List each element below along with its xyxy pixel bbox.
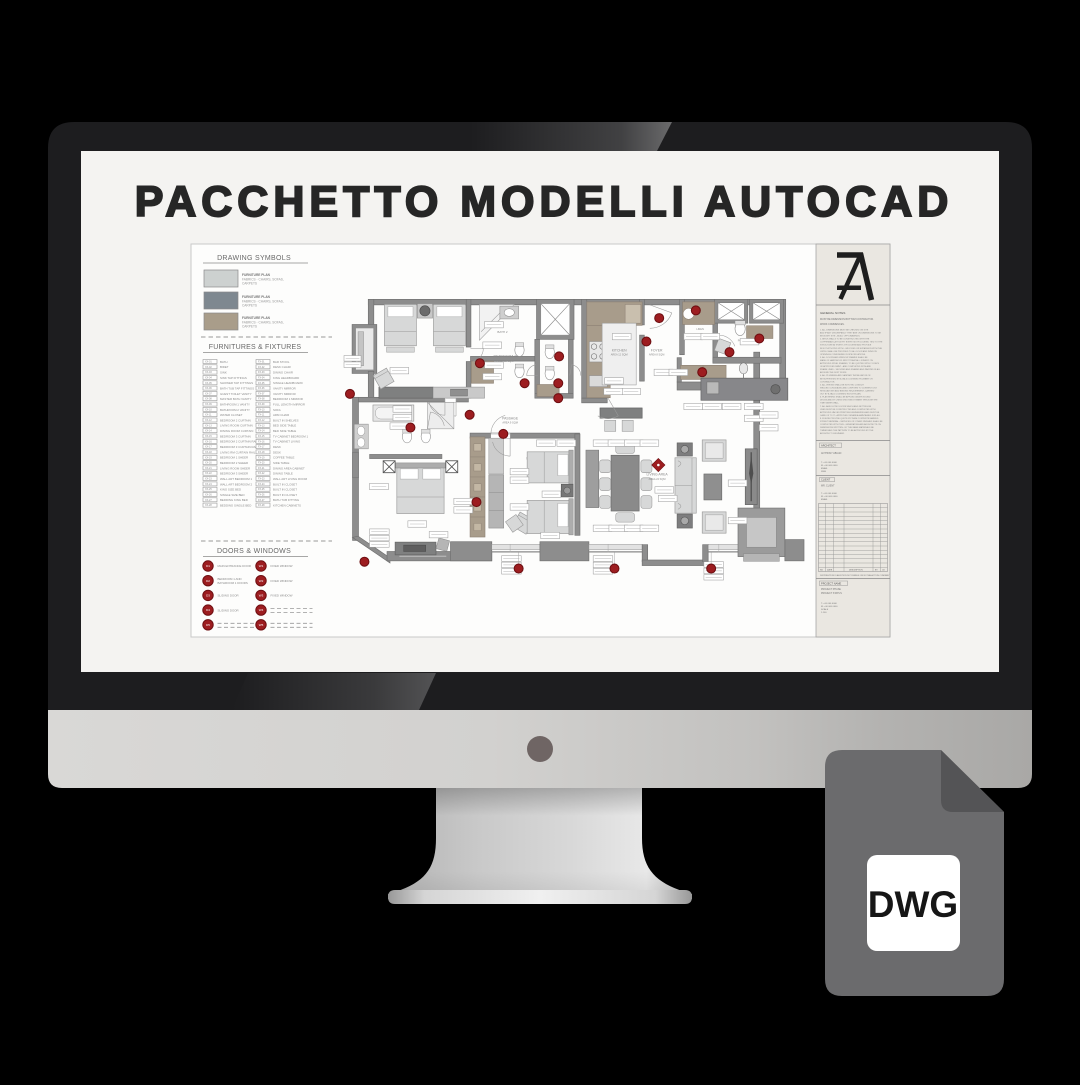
- svg-text:STRUCTURE AT EVERY 4TH COURSE: STRUCTURE AT EVERY 4TH COURSE AND PROVID…: [820, 344, 872, 347]
- svg-text:APPROVED VALVES PRINTING ENGIN: APPROVED VALVES PRINTING ENGINEERING AND…: [820, 411, 880, 414]
- svg-text:1. ALL DIMENSIONS MUST BE C: 1. ALL DIMENSIONS MUST BE CHECKED ON SIT…: [820, 329, 869, 332]
- svg-text:FULL LENGTH MIRROR: FULL LENGTH MIRROR: [273, 403, 305, 407]
- svg-text:FX-06: FX-06: [258, 387, 265, 390]
- svg-text:AREA 9 SQM: AREA 9 SQM: [502, 421, 517, 425]
- svg-text:XX-06: XX-06: [205, 387, 212, 390]
- svg-text:FX-27: FX-27: [258, 499, 265, 502]
- svg-text:FX-09: FX-09: [258, 403, 265, 406]
- svg-text:WALL ART LIVING ROOM: WALL ART LIVING ROOM: [273, 477, 308, 481]
- svg-text:ARM CHAIR: ARM CHAIR: [273, 413, 289, 417]
- svg-text:SLIDING DOOR: SLIDING DOOR: [218, 608, 239, 612]
- svg-text:XX-02: XX-02: [205, 366, 212, 369]
- svg-text:ARCHITECT / ENGINEER.: ARCHITECT / ENGINEER.: [820, 432, 845, 435]
- svg-text:XX-18: XX-18: [205, 451, 212, 454]
- svg-text:BEDROOM 2: BEDROOM 2: [494, 354, 517, 358]
- svg-text:4. ALL PLUMBING AND SANITAR: 4. ALL PLUMBING AND SANITARY INSTALLATIO…: [820, 374, 871, 377]
- svg-text:LINEN: LINEN: [696, 327, 704, 331]
- svg-text:AREA 12 SQM: AREA 12 SQM: [611, 353, 628, 357]
- svg-text:D4: D4: [206, 608, 210, 612]
- svg-text:AND IF ANY DISCREPANCY THEY AR: AND IF ANY DISCREPANCY THEY ARE ON DIMEN…: [820, 332, 882, 335]
- svg-text:WALL ART BEDROOM 1: WALL ART BEDROOM 1: [220, 477, 253, 481]
- svg-text:FURNITURES & FIXTURES: FURNITURES & FIXTURES: [209, 344, 302, 351]
- svg-text:BEDROOM 1 MIRROR: BEDROOM 1 MIRROR: [273, 397, 303, 401]
- svg-text:GENERAL NOTES: GENERAL NOTES: [820, 311, 845, 315]
- svg-text:FX-20: FX-20: [258, 462, 265, 465]
- svg-text:BATH: BATH: [220, 360, 228, 364]
- svg-text:BEDDING SINGLE BED: BEDDING SINGLE BED: [220, 504, 251, 508]
- svg-text:XX-08: XX-08: [205, 398, 212, 401]
- svg-text:T: +00 000 0000: T: +00 000 0000: [821, 462, 838, 464]
- svg-text:D2: D2: [206, 579, 210, 583]
- svg-text:FX-07: FX-07: [258, 392, 265, 395]
- svg-text:BED SIDE TABLE: BED SIDE TABLE: [273, 429, 296, 433]
- svg-text:COPPERBAR LATTICE FIT EVERY SI: COPPERBAR LATTICE FIT EVERY SIXTH COURSE…: [820, 341, 883, 344]
- svg-text:TV CABINET LIVING: TV CABINET LIVING: [273, 440, 301, 444]
- svg-text:XX-01: XX-01: [205, 361, 212, 364]
- svg-text:M: +00 000 0000: M: +00 000 0000: [821, 606, 838, 608]
- svg-text:XX-11: XX-11: [205, 414, 212, 417]
- svg-text:WATER CLOSET: WATER CLOSET: [220, 413, 243, 417]
- svg-text:DINING CHAIR: DINING CHAIR: [273, 371, 293, 375]
- svg-text:DESK CHAIR: DESK CHAIR: [273, 365, 291, 369]
- svg-text:FX-08: FX-08: [258, 398, 265, 401]
- svg-text:NO: NO: [820, 569, 823, 571]
- svg-text:AROUND THE SOFT WORK.: AROUND THE SOFT WORK.: [820, 371, 847, 374]
- svg-text:XX-21: XX-21: [205, 467, 212, 470]
- svg-text:BATHROOM 1 VANITY: BATHROOM 1 VANITY: [220, 403, 250, 407]
- svg-text:DESK: DESK: [273, 445, 281, 449]
- svg-text:XX-27: XX-27: [205, 499, 212, 502]
- svg-text:XX-12: XX-12: [205, 419, 212, 422]
- svg-text:CARPETS: CARPETS: [242, 325, 257, 329]
- svg-text:BEDROOM 2 CURTAIN RAIL: BEDROOM 2 CURTAIN RAIL: [220, 440, 258, 444]
- svg-text:6. PLASTERING SHALL BE APPL: 6. PLASTERING SHALL BE APPLIED UNDER SOU…: [820, 396, 871, 399]
- svg-text:XX-23: XX-23: [205, 478, 212, 481]
- svg-text:FX-28: FX-28: [258, 504, 265, 507]
- svg-text:CARPETS: CARPETS: [242, 282, 257, 286]
- svg-text:XX-28: XX-28: [205, 504, 212, 507]
- svg-text:MASTER BATH VANITY: MASTER BATH VANITY: [220, 397, 251, 401]
- svg-text:XX-17: XX-17: [205, 446, 212, 449]
- svg-text:XX-16: XX-16: [205, 440, 212, 443]
- svg-text:REGULATIONS AND BINDING REQUIR: REGULATIONS AND BINDING REQUIREMENT, CAR…: [820, 390, 875, 393]
- svg-text:DINING TABLE: DINING TABLE: [273, 472, 293, 476]
- svg-text:FX-22: FX-22: [258, 472, 265, 475]
- svg-text:PASSAGE: PASSAGE: [502, 416, 519, 420]
- svg-text:WELDED CONCEALED AND CONFORM T: WELDED CONCEALED AND CONFORM TO CURRENT …: [820, 387, 878, 390]
- svg-text:DINING AREA CABINET: DINING AREA CABINET: [273, 466, 305, 470]
- svg-text:D1: D1: [206, 564, 210, 568]
- svg-text:FRAME LINED - SECURED AND FRAM: FRAME LINED - SECURED AND FRAMED AND PAI…: [820, 368, 881, 371]
- svg-text:FX-04: FX-04: [258, 377, 265, 380]
- svg-text:WALL ART BEDROOM 2: WALL ART BEDROOM 2: [220, 482, 253, 486]
- svg-text:XX-13: XX-13: [205, 424, 212, 427]
- svg-text:FIXED WINDOW: FIXED WINDOW: [271, 579, 293, 583]
- svg-text:PACCHETTO MODELLI AUTOCAD: PACCHETTO MODELLI AUTOCAD: [135, 178, 954, 226]
- svg-text:TV CABINET BEDROOM 1: TV CABINET BEDROOM 1: [273, 434, 309, 438]
- svg-text:FX-05: FX-05: [258, 382, 265, 385]
- svg-text:DRAWING SYMBOLS: DRAWING SYMBOLS: [217, 255, 291, 262]
- svg-text:CONTRACTOR.: CONTRACTOR.: [820, 380, 835, 383]
- svg-text:FURNITURE PLAN: FURNITURE PLAN: [242, 295, 271, 299]
- svg-text:DISTRIBUTION IS ADDITION IS PO: DISTRIBUTION IS ADDITION IS POSSIBLE ON …: [820, 574, 890, 577]
- svg-text:FX-13: FX-13: [258, 424, 265, 427]
- svg-text:MUST BE DIMENSION BOTTOM CONTR: MUST BE DIMENSION BOTTOM CONTRACTOR.: [820, 318, 874, 321]
- svg-text:FX-11: FX-11: [258, 414, 265, 417]
- svg-text:FOYER: FOYER: [651, 348, 663, 352]
- svg-text:CARE OF TO IT - APPROVED VERAN: CARE OF TO IT - APPROVED VERANDA MAINTAI…: [820, 414, 881, 417]
- svg-text:EMAIL: EMAIL: [821, 498, 828, 501]
- svg-text:DIMENSIONS WRITTEN - BY THE NA: DIMENSIONS WRITTEN - BY THE NAME MATERIA…: [820, 426, 874, 429]
- svg-text:SIDE TABLE: SIDE TABLE: [273, 461, 290, 465]
- svg-text:XX-25: XX-25: [205, 488, 212, 491]
- svg-text:XX-04: XX-04: [205, 377, 212, 380]
- svg-text:LIVING RM CURTAIN RAIL: LIVING RM CURTAIN RAIL: [220, 450, 256, 454]
- svg-text:XX-05: XX-05: [205, 382, 212, 385]
- svg-text:XX-22: XX-22: [205, 472, 212, 475]
- svg-text:5. ALL WIRING SHALL BE IN H: 5. ALL WIRING SHALL BE IN HOTEL CONDUIT: [820, 383, 865, 386]
- svg-text:FX-26: FX-26: [258, 494, 265, 497]
- svg-text:FX-19: FX-19: [258, 456, 265, 459]
- svg-text:BIDET: BIDET: [220, 365, 229, 369]
- svg-text:SOFA: SOFA: [273, 408, 281, 412]
- svg-text:DATE: DATE: [827, 568, 833, 571]
- svg-text:FX-17: FX-17: [258, 446, 265, 449]
- svg-text:APPROVED STEEL FRAMES, TO BE Q: APPROVED STEEL FRAMES, TO BE QUOTED WITH…: [820, 362, 880, 365]
- svg-text:OPENINGS CONSIDERED IN SPECIFI: OPENINGS CONSIDERED IN SPECIFICATIONS.: [820, 353, 866, 356]
- svg-text:SLIDING DOOR: SLIDING DOOR: [218, 594, 239, 598]
- svg-text:BATH TUB TAP FITTINGS: BATH TUB TAP FITTINGS: [220, 387, 254, 391]
- svg-text:TIMBER AND THE PATTERN TO BE A: TIMBER AND THE PATTERN TO BE APPROVED BY…: [820, 429, 874, 432]
- svg-text:W1: W1: [259, 564, 264, 568]
- svg-text:BEDROOM 2 SHEER: BEDROOM 2 SHEER: [220, 461, 248, 465]
- svg-text:3. ALL DOORS AND WINDOW FRA: 3. ALL DOORS AND WINDOW FRAMES SHALL BE: [820, 356, 868, 359]
- svg-text:OF APPROVED PAINT - AND COMPLE: OF APPROVED PAINT - AND COMPLETED WITH A…: [820, 365, 872, 368]
- svg-text:XX-19: XX-19: [205, 456, 212, 459]
- svg-text:SINGLE HEADBOARD: SINGLE HEADBOARD: [273, 381, 303, 385]
- svg-text:LIVING AREA: LIVING AREA: [647, 473, 669, 477]
- svg-text:8. FIGURE PROVIDE QUOTE BY: 8. FIGURE PROVIDE QUOTE BY THEM CONTENTS…: [820, 417, 879, 420]
- svg-text:T: +00 000 0000: T: +00 000 0000: [821, 603, 838, 605]
- svg-text:FIXED WINDOW: FIXED WINDOW: [271, 564, 293, 568]
- svg-text:XX-14: XX-14: [205, 430, 212, 433]
- svg-text:SINK: SINK: [220, 371, 227, 375]
- svg-text:FX-02: FX-02: [258, 366, 265, 369]
- svg-text:AREA 8 SQM: AREA 8 SQM: [649, 353, 664, 357]
- svg-text:KITCHEN CABINETS: KITCHEN CABINETS: [273, 504, 301, 508]
- svg-text:BATH 2: BATH 2: [497, 330, 508, 334]
- svg-text:WEB: WEB: [821, 471, 827, 473]
- svg-text:SHOWER TAP FITTINGS: SHOWER TAP FITTINGS: [220, 381, 253, 385]
- svg-text:KING HEADBOARD: KING HEADBOARD: [273, 376, 299, 380]
- svg-text:MAIN ENTRANCE DOOR: MAIN ENTRANCE DOOR: [218, 564, 251, 568]
- svg-text:BAR STOOL: BAR STOOL: [273, 360, 290, 364]
- svg-text:W2: W2: [259, 579, 264, 583]
- svg-text:BEDROOM 2 CURTAIN: BEDROOM 2 CURTAIN: [220, 418, 251, 422]
- svg-text:FX-16: FX-16: [258, 440, 265, 443]
- svg-text:FX-18: FX-18: [258, 451, 265, 454]
- svg-text:BUILT IN CLOSET: BUILT IN CLOSET: [273, 482, 297, 486]
- svg-text:M: +00 000 0000: M: +00 000 0000: [821, 465, 838, 467]
- svg-text:BATHROOM 2 VANITY: BATHROOM 2 VANITY: [220, 408, 250, 412]
- svg-text:W4: W4: [259, 608, 264, 612]
- svg-text:W3: W3: [259, 594, 264, 598]
- svg-text:FX-15: FX-15: [258, 435, 265, 438]
- svg-text:IN NOT AT NOTED WITH - GROOVED: IN NOT AT NOTED WITH - GROOVED OR EXPANS…: [820, 347, 883, 350]
- svg-text:XX-03: XX-03: [205, 371, 212, 374]
- svg-text:BUILT IN CLOSET: BUILT IN CLOSET: [273, 488, 297, 492]
- svg-text:BATH TUB FITTING: BATH TUB FITTING: [273, 498, 300, 502]
- svg-text:D3: D3: [206, 594, 210, 598]
- svg-text:BEDROOM 1 SHEER: BEDROOM 1 SHEER: [220, 456, 248, 460]
- svg-text:DECKS AND BY CRISS GROOVING TI: DECKS AND BY CRISS GROOVING TIMBER THROU…: [820, 399, 878, 402]
- svg-text:WORK COMMENCES.: WORK COMMENCES.: [820, 323, 845, 326]
- svg-text:COFFEE TABLE: COFFEE TABLE: [273, 456, 294, 460]
- svg-text:SINK TAP FITTINGS: SINK TAP FITTINGS: [220, 376, 247, 380]
- svg-text:DESCRIPTION: DESCRIPTION: [849, 569, 863, 571]
- svg-text:BATHROOM 1 DOORS: BATHROOM 1 DOORS: [218, 581, 248, 585]
- svg-text:FX-10: FX-10: [258, 408, 265, 411]
- svg-text:2. BRICK WALLS TO BE CONSTR: 2. BRICK WALLS TO BE CONSTRUCTED WITH TH…: [820, 338, 870, 341]
- svg-text:DWG: DWG: [868, 884, 958, 925]
- svg-text:PROJECT PHASE: PROJECT PHASE: [821, 588, 841, 591]
- svg-text:DOORS & WINDOWS: DOORS & WINDOWS: [217, 548, 291, 555]
- svg-text:FX-24: FX-24: [258, 483, 265, 486]
- svg-text:SINGLE SIZE BED: SINGLE SIZE BED: [220, 493, 245, 497]
- svg-text:MADE OF HARDWOOD FIRST TREAT A: MADE OF HARDWOOD FIRST TREAT ALL JOINERY…: [820, 359, 873, 362]
- svg-text:DESK: DESK: [273, 450, 281, 454]
- svg-text:BED SIDE TABLE: BED SIDE TABLE: [273, 424, 296, 428]
- svg-text:XX-24: XX-24: [205, 483, 212, 486]
- svg-text:FX-01: FX-01: [258, 361, 265, 364]
- svg-text:LIVING ROOM SHEER: LIVING ROOM SHEER: [220, 466, 250, 470]
- svg-text:COMPLETED WITH THIS - GENERATI: COMPLETED WITH THIS - GENERATING AND ARC…: [820, 423, 881, 426]
- svg-text:CARPETS: CARPETS: [242, 304, 257, 308]
- svg-text:EMAIL: EMAIL: [821, 467, 828, 470]
- svg-text:XX-26: XX-26: [205, 494, 212, 497]
- svg-text:VANITY MIRROR: VANITY MIRROR: [273, 387, 296, 391]
- svg-text:TIME WATER WALL.: TIME WATER WALL.: [820, 402, 840, 405]
- svg-text:DINING ROOM CURTAIN: DINING ROOM CURTAIN: [220, 429, 253, 433]
- svg-text:FURNITURE PLAN: FURNITURE PLAN: [242, 316, 271, 320]
- svg-text:XX-15: XX-15: [205, 435, 212, 438]
- svg-text:FURNITURE PLAN: FURNITURE PLAN: [242, 273, 271, 277]
- svg-text:STREET MATERIAL - SERVICES OR: STREET MATERIAL - SERVICES OR OTHER FINI…: [820, 420, 883, 423]
- svg-text:ARCHITECT: ARCHITECT: [821, 443, 836, 447]
- svg-text:LIVING ROOM CURTAIN: LIVING ROOM CURTAIN: [220, 424, 253, 428]
- svg-text:FX-12: FX-12: [258, 419, 265, 422]
- svg-text:CLIENT: CLIENT: [821, 478, 831, 482]
- svg-text:7. ALL ABSOLUTE FLOORS WHIC: 7. ALL ABSOLUTE FLOORS WHICH AND SETTING…: [820, 405, 872, 408]
- svg-text:BUILT IN CLOSET: BUILT IN CLOSET: [273, 493, 297, 497]
- svg-text:BEDROOM 3 CURTAIN RAIL: BEDROOM 3 CURTAIN RAIL: [220, 445, 258, 449]
- svg-text:BE SUPERVISED BY A VALID LICEN: BE SUPERVISED BY A VALID LICENSED PLUMBE…: [820, 377, 873, 380]
- svg-text:XX-10: XX-10: [205, 408, 212, 411]
- svg-text:KING SIZE BED: KING SIZE BED: [220, 488, 241, 492]
- svg-text:GUEST TOILET VANITY: GUEST TOILET VANITY: [220, 392, 252, 396]
- svg-text:M: +00 000 0000: M: +00 000 0000: [821, 496, 838, 498]
- svg-text:FIXED WINDOW: FIXED WINDOW: [271, 594, 293, 598]
- svg-text:FX-14: FX-14: [258, 430, 265, 433]
- svg-text:XX-20: XX-20: [205, 462, 212, 465]
- svg-text:VANITY MIRROR: VANITY MIRROR: [273, 392, 296, 396]
- svg-text:BEDROOM 3 SHEER: BEDROOM 3 SHEER: [220, 472, 248, 476]
- svg-text:BEDROOM 3 CURTAIN: BEDROOM 3 CURTAIN: [220, 434, 251, 438]
- svg-text:BROUGHT SITE - BUILD OFF DRAWI: BROUGHT SITE - BUILD OFF DRAWINGS.: [820, 335, 861, 338]
- svg-text:MR. CLIENT: MR. CLIENT: [821, 485, 835, 488]
- svg-text:KITCHEN: KITCHEN: [612, 348, 627, 352]
- svg-text:AREA 24 SQM: AREA 24 SQM: [649, 477, 666, 481]
- svg-text:XX-07: XX-07: [205, 392, 212, 395]
- svg-text:XX-09: XX-09: [205, 403, 212, 406]
- svg-text:FX-03: FX-03: [258, 371, 265, 374]
- svg-text:BEDDING KING BED: BEDDING KING BED: [220, 498, 248, 502]
- svg-text:D5: D5: [206, 623, 210, 627]
- svg-text:SCALE: SCALE: [821, 608, 829, 611]
- svg-text:FX-21: FX-21: [258, 467, 265, 470]
- svg-text:FX-23: FX-23: [258, 478, 265, 481]
- svg-text:ANTHONY ABUAD: ANTHONY ABUAD: [821, 452, 842, 455]
- svg-text:BUILT IN SHELVES: BUILT IN SHELVES: [273, 418, 299, 422]
- svg-text:W5: W5: [259, 623, 264, 627]
- svg-text:USED MUST BE CONSTRUCTED AND C: USED MUST BE CONSTRUCTED AND COMPLETED W…: [820, 408, 876, 411]
- svg-text:1:100: 1:100: [821, 612, 827, 614]
- svg-text:PROJECT NAME: PROJECT NAME: [821, 581, 842, 585]
- svg-text:T: +00 000 0000: T: +00 000 0000: [821, 493, 838, 495]
- svg-text:FX-25: FX-25: [258, 488, 265, 491]
- svg-text:PROJECT STATUS: PROJECT STATUS: [821, 592, 842, 595]
- svg-text:OUT BY A VALID LICENSED ELECTR: OUT BY A VALID LICENSED ELECTRICIAN.: [820, 393, 861, 396]
- svg-text:LINTEL SHALL BE PROVIDED TO AL: LINTEL SHALL BE PROVIDED TO ALL DOOR AND…: [820, 350, 877, 353]
